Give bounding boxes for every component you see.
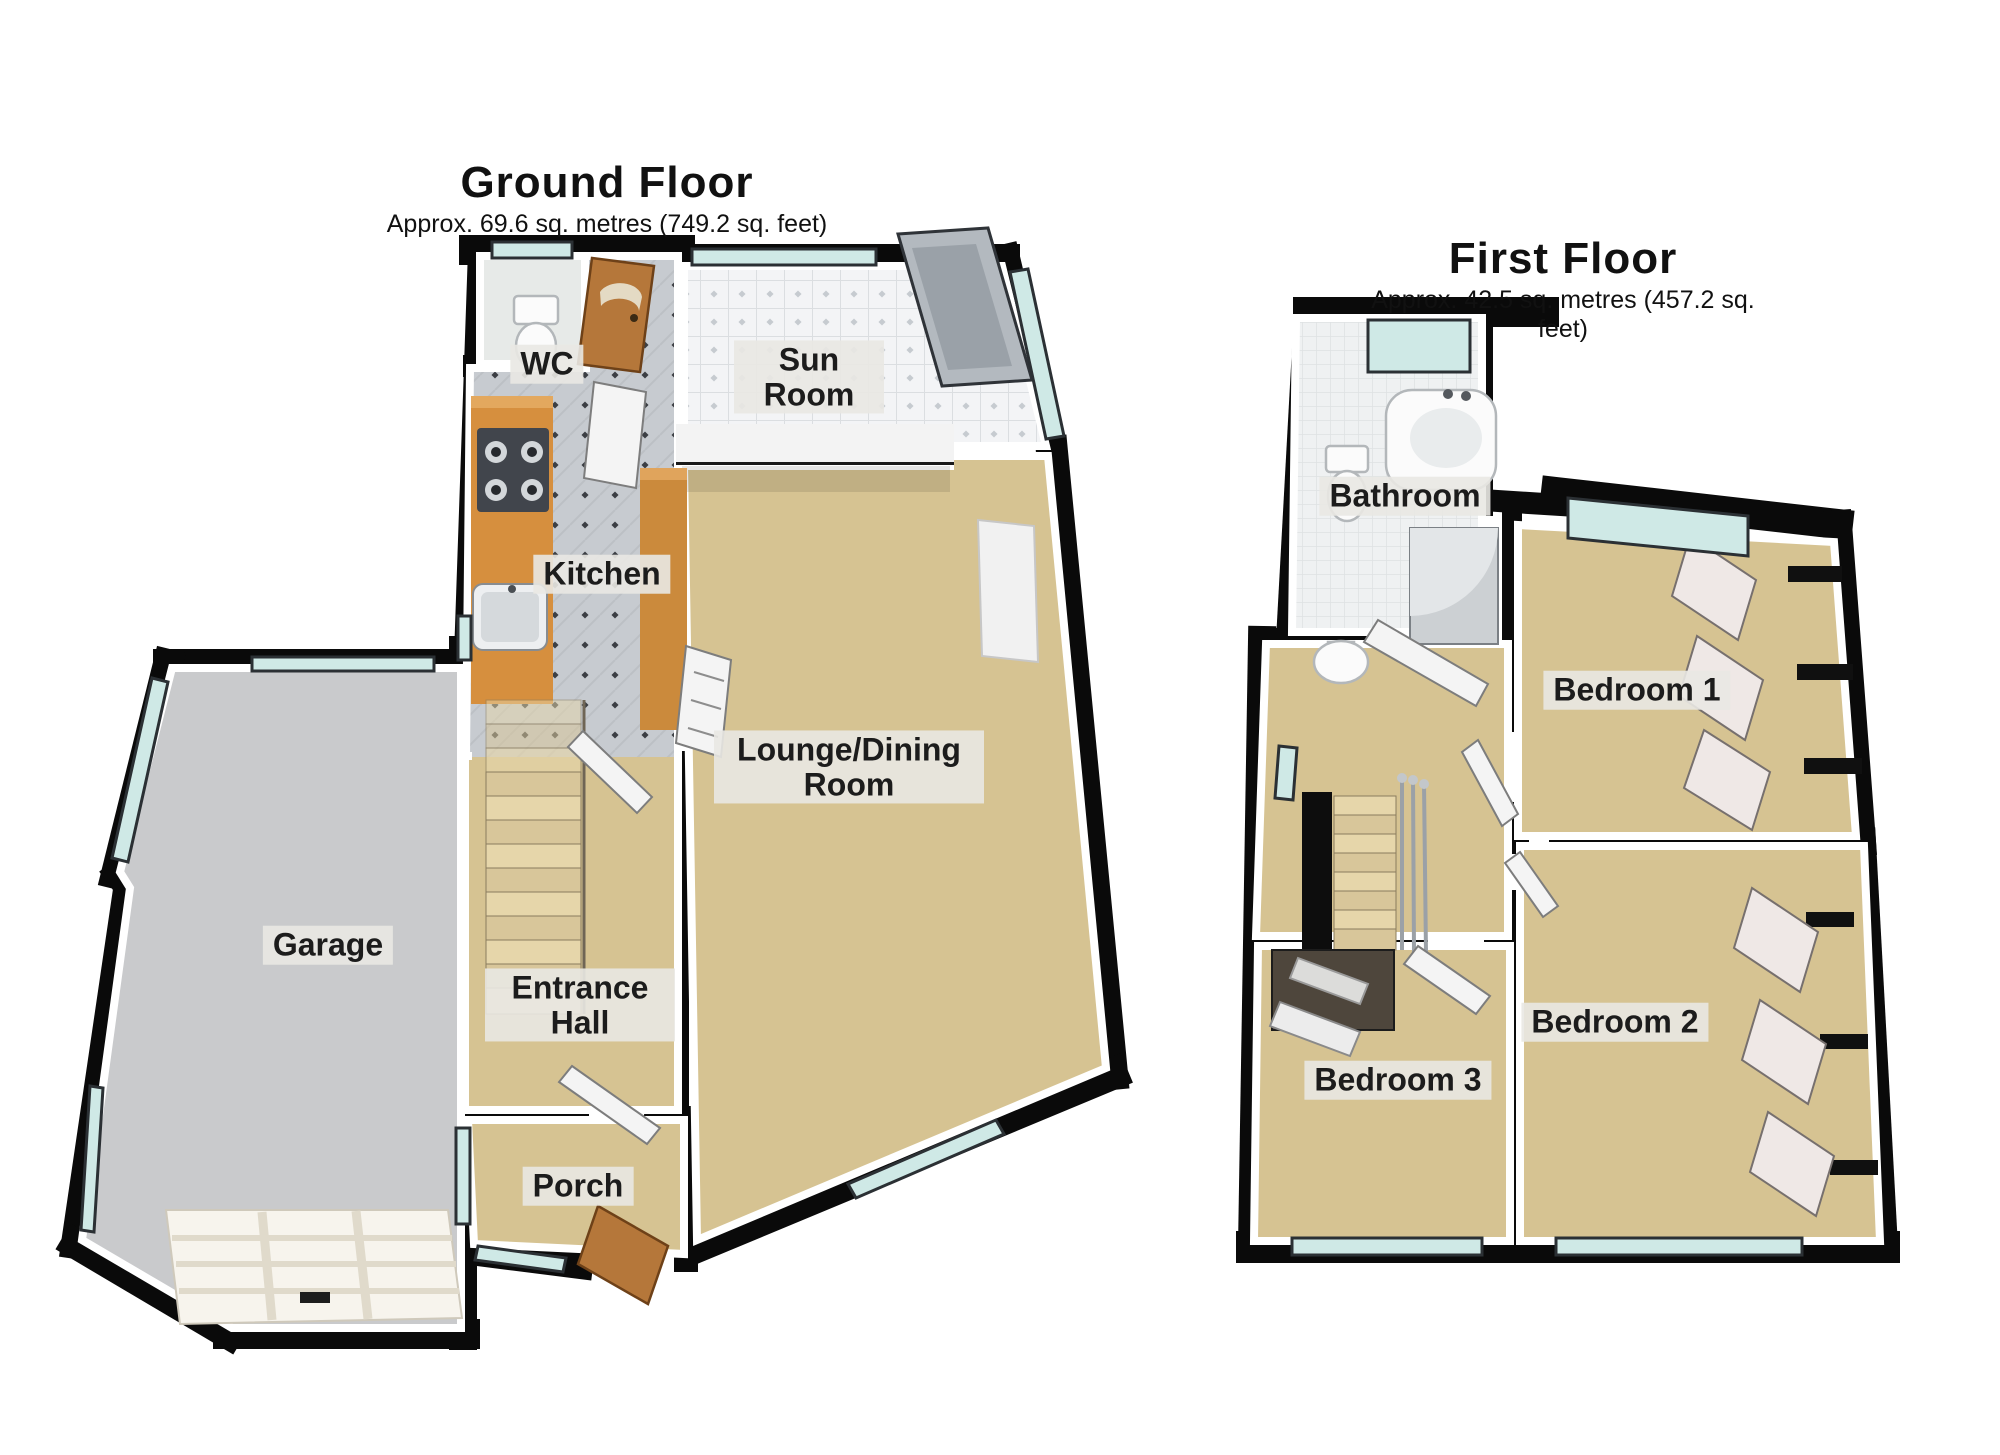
room-label-kitchen: Kitchen <box>533 555 670 594</box>
chimney-breast <box>978 520 1038 662</box>
ground-floor-title-block: Ground Floor Approx. 69.6 sq. metres (74… <box>387 160 828 239</box>
room-label-garage: Garage <box>263 926 393 965</box>
garage-window-north <box>252 657 434 671</box>
bedroom2-window <box>1556 1238 1802 1255</box>
room-label-entrance-hall: Entrance Hall <box>485 968 675 1041</box>
toilet-tank <box>1326 446 1368 472</box>
stairwell-opening <box>1302 792 1332 952</box>
floorplan-canvas: Ground Floor Approx. 69.6 sq. metres (74… <box>0 0 2000 1455</box>
first-floor-area: Approx. 42.5 sq. metres (457.2 sq. feet) <box>1345 286 1782 344</box>
room-label-lounge: Lounge/Dining Room <box>714 730 984 803</box>
garage-door-group <box>166 1210 462 1324</box>
first-floor-title: First Floor <box>1345 236 1782 282</box>
room-label-bedroom3: Bedroom 3 <box>1304 1061 1491 1100</box>
room-label-wc: WC <box>510 345 583 384</box>
wc-window <box>492 242 572 258</box>
ground-floor-title: Ground Floor <box>387 160 828 206</box>
lounge-floor <box>684 456 1106 1240</box>
first-floor-title-block: First Floor Approx. 42.5 sq. metres (457… <box>1345 236 1782 344</box>
sun-room-divider-wall <box>676 424 954 464</box>
first-floor-plan <box>1252 312 1884 1255</box>
porch-window-west <box>456 1128 470 1224</box>
room-label-bathroom: Bathroom <box>1319 477 1490 516</box>
banister-post <box>1413 780 1414 952</box>
landing-window <box>1275 746 1297 800</box>
garage-door-handle <box>300 1292 330 1303</box>
room-label-porch: Porch <box>523 1167 634 1206</box>
stove <box>477 428 549 512</box>
banister-post <box>1424 784 1426 954</box>
kitchen-island <box>640 468 687 730</box>
room-label-bedroom2: Bedroom 2 <box>1521 1003 1708 1042</box>
bathroom-sink <box>1314 641 1368 683</box>
bedroom3-window <box>1292 1238 1482 1255</box>
front-door <box>578 258 654 372</box>
ground-floor-area: Approx. 69.6 sq. metres (749.2 sq. feet) <box>387 210 828 239</box>
floorplan-drawing <box>0 0 2000 1455</box>
inner-hall-door <box>584 382 646 488</box>
sun-room-window-top <box>692 249 876 265</box>
kitchen-window <box>458 616 471 660</box>
wc-toilet-tank <box>514 296 558 324</box>
room-label-bedroom1: Bedroom 1 <box>1543 671 1730 710</box>
room-label-sun-room: Sun Room <box>734 340 884 413</box>
